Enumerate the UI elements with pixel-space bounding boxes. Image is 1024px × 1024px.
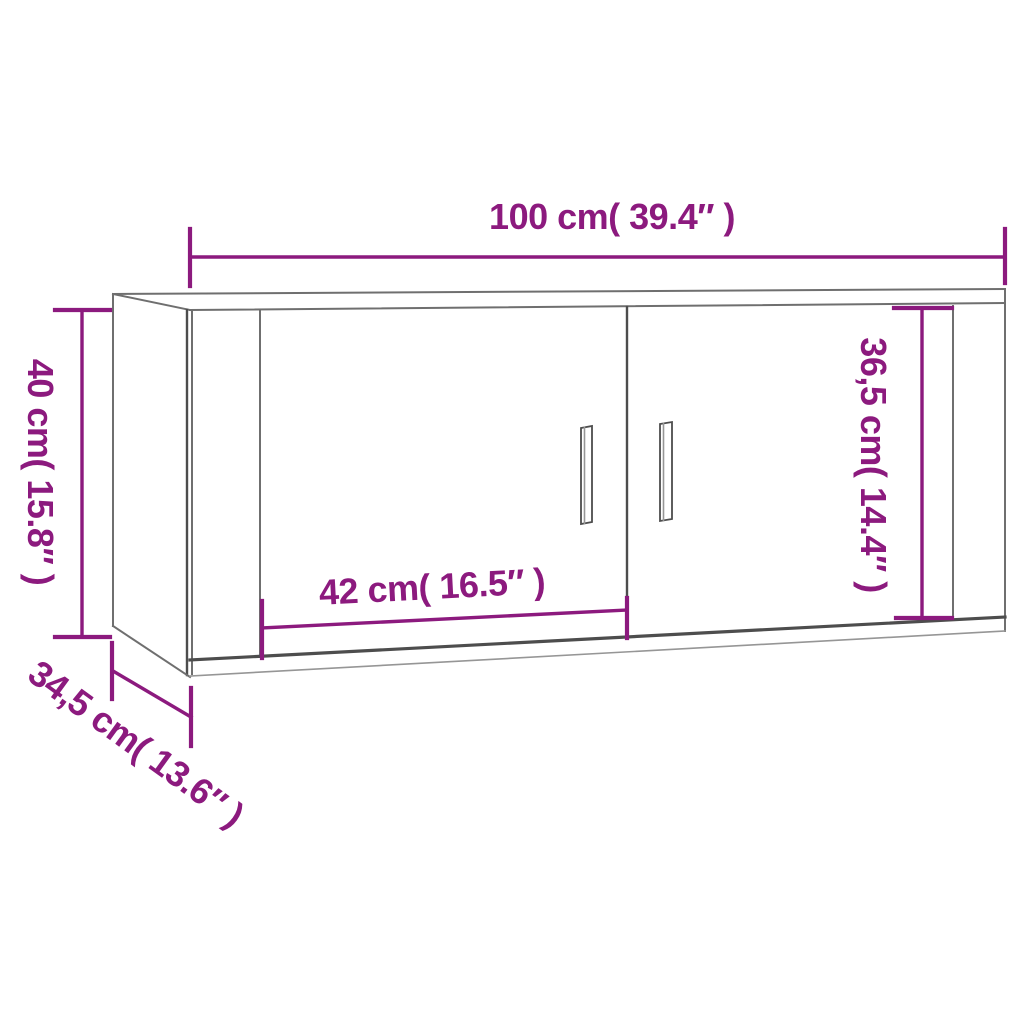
dimension-diagram: 100 cm( 39.4″ ) 40 cm( 15.8″ ) 36,5 cm( … <box>0 0 1024 1024</box>
cabinet-top-front-edge <box>190 303 1005 310</box>
door-width-dimension-line <box>262 610 627 628</box>
cabinet-top-back-edge <box>113 289 1005 294</box>
width-dimension-label: 100 cm( 39.4″ ) <box>489 196 735 238</box>
height-dimension-label: 40 cm( 15.8″ ) <box>19 359 61 585</box>
dimension-line-height <box>55 310 110 637</box>
door-handle-left <box>581 426 592 524</box>
cabinet-side-top-edge <box>113 294 190 310</box>
handle-left-body <box>581 426 592 524</box>
dimension-line-inner-height <box>894 308 952 618</box>
door-handle-right <box>660 422 672 521</box>
cabinet-side-bottom-edge <box>113 626 190 677</box>
handle-right-body <box>660 422 672 521</box>
inner-height-dimension-label: 36,5 cm( 14.4″ ) <box>852 337 894 592</box>
